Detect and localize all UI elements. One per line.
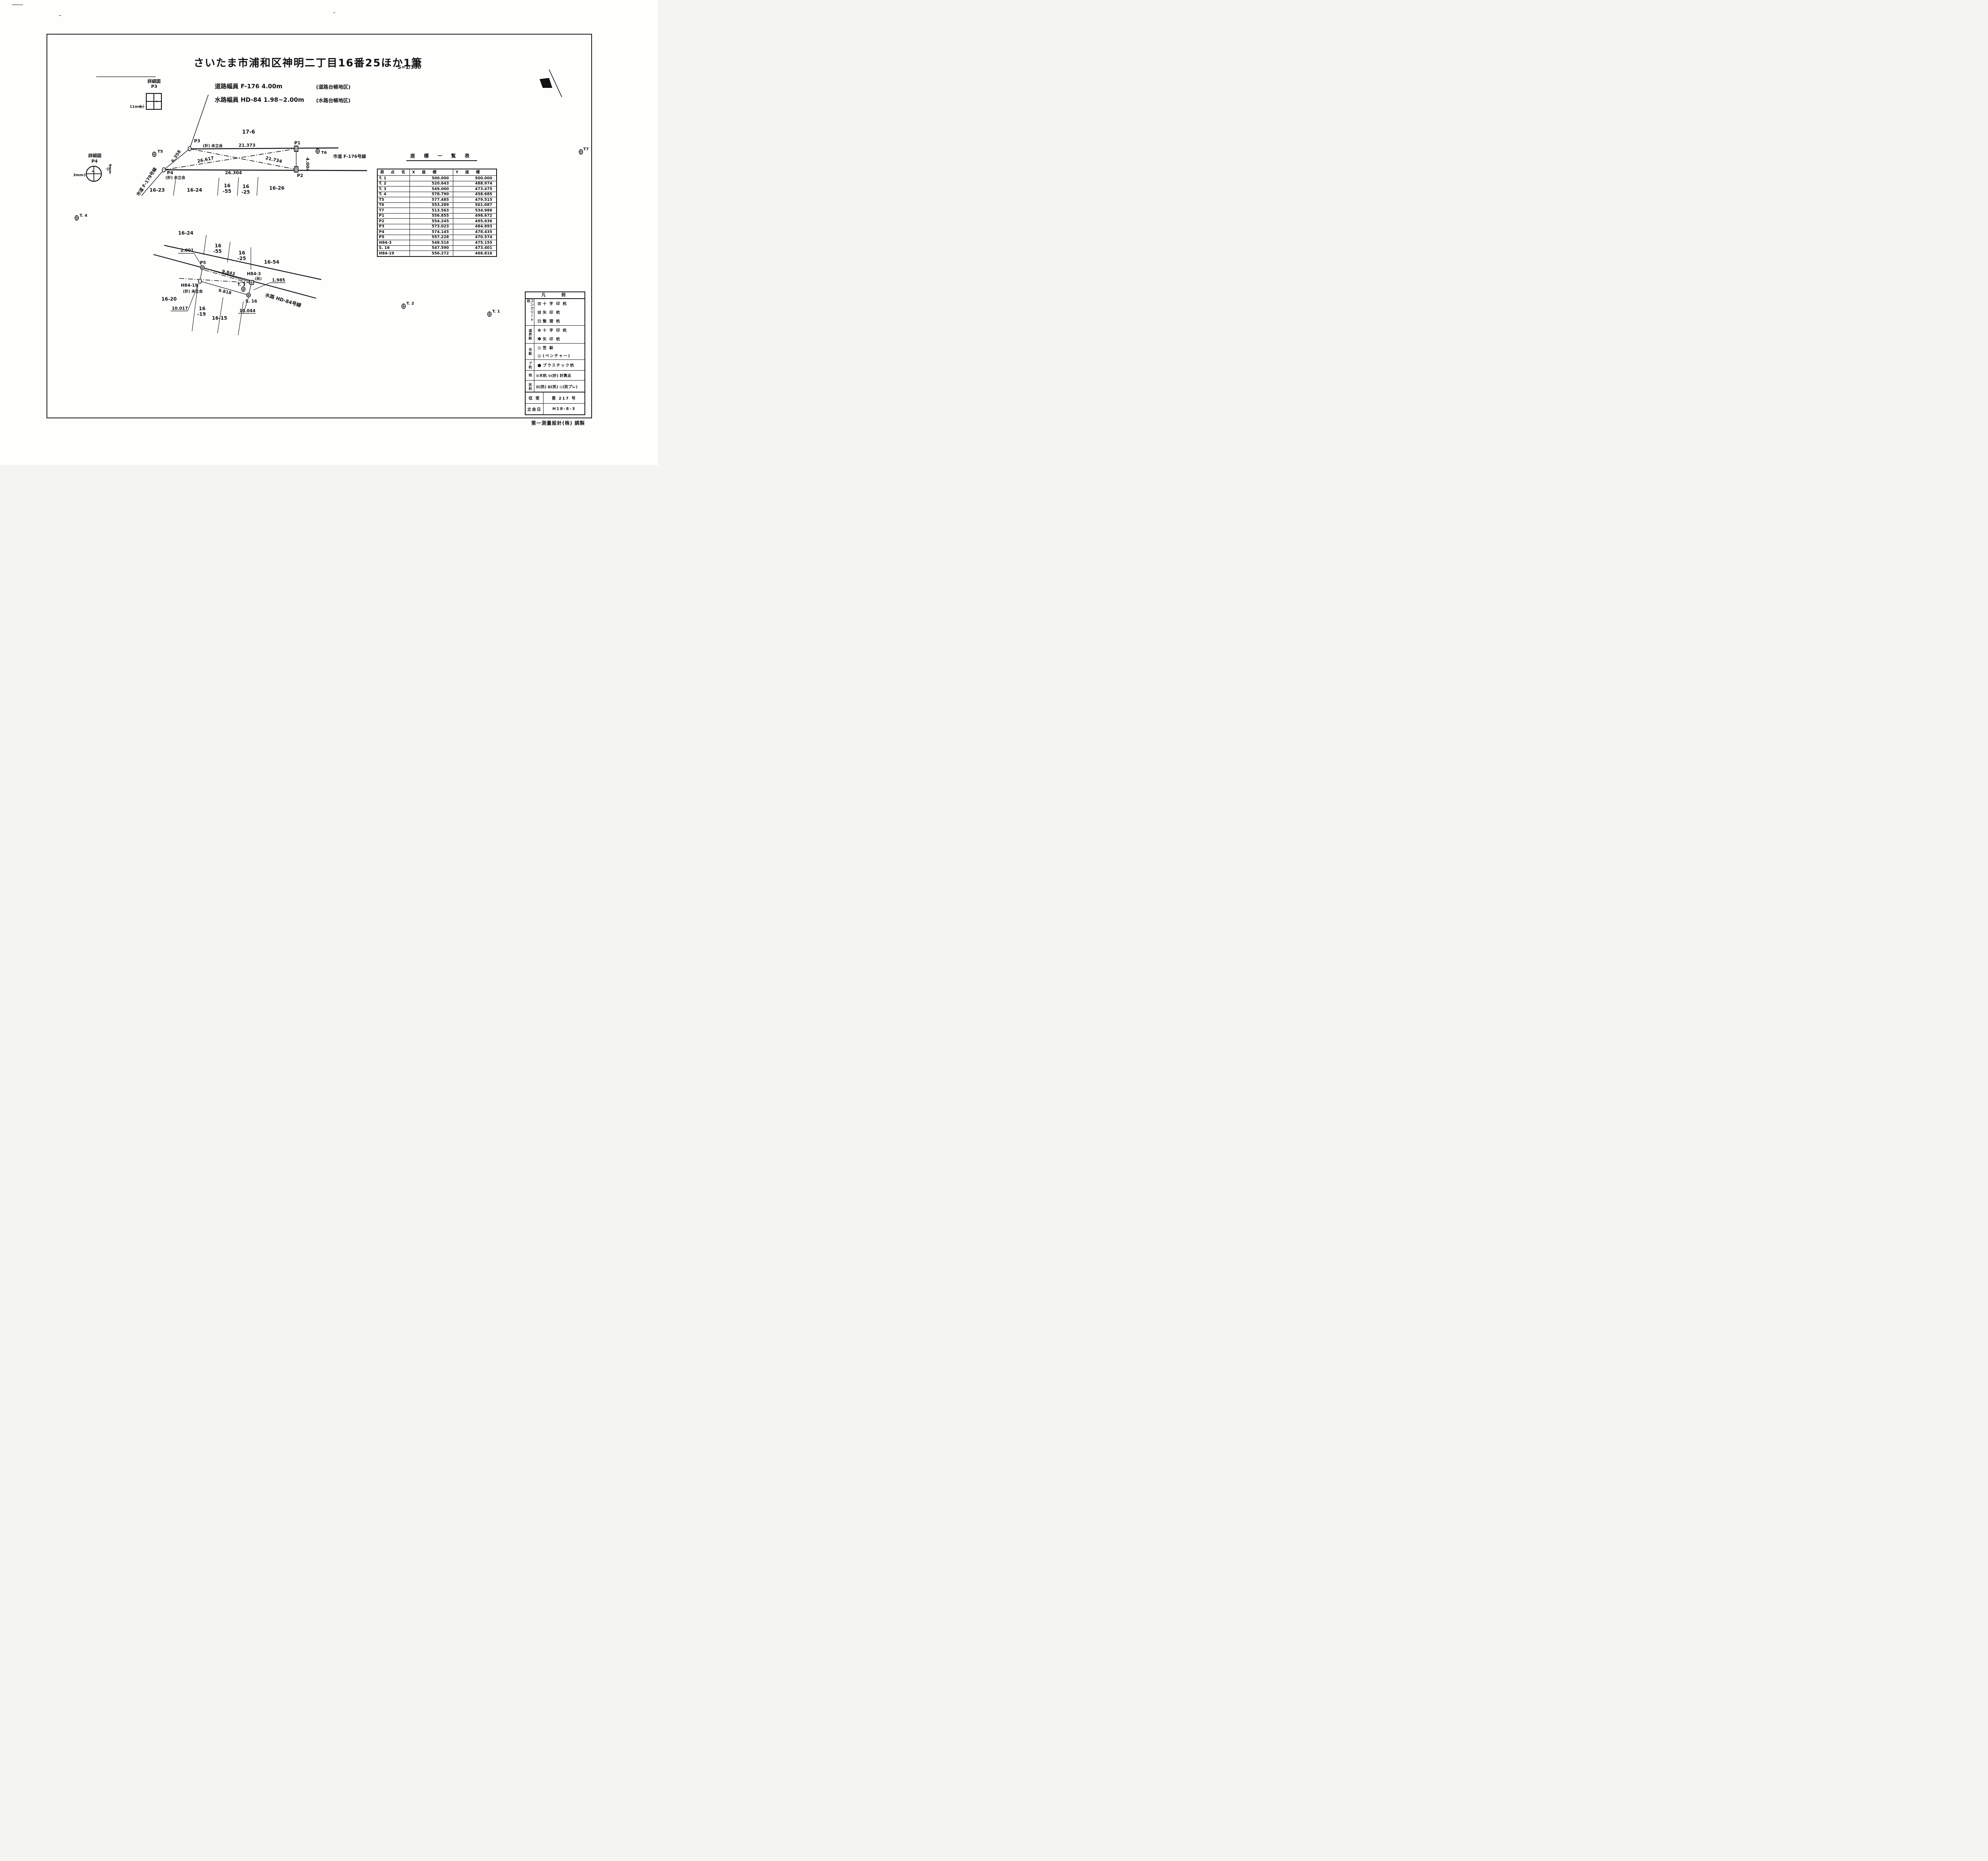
cell-name: P2 (377, 219, 410, 224)
legend-group-private: 民杭 ⊞(民) ⊠(民) ◎(民プレ) (526, 381, 584, 392)
legend-group-label: コンクリート杭 (526, 299, 534, 325)
cell-y: 534.986 (453, 208, 497, 214)
legend-row-label: 矢 印 杭 (543, 336, 583, 342)
parcel-16-24: 16-24 (187, 187, 202, 193)
legend-group-road-pin: 道界鋲 ⊕十 字 印 杭 Φ矢 印 杭 (526, 326, 584, 344)
cell-name: T. 1 (377, 176, 410, 181)
legend-group-plastic: プ杭 ●プラスチック杭 (526, 360, 584, 371)
cell-y: 475.155 (453, 240, 497, 246)
table-row: T. 4578.790458.685 (377, 192, 497, 197)
parcel-label-17-6: 17-6 (242, 129, 255, 135)
table-row: T7513.563534.986 (377, 208, 497, 214)
cell-name: T7 (377, 208, 410, 214)
legend-row-label: (ベンチャー) (543, 353, 583, 358)
dot-square-icon: ⊡ (536, 319, 543, 324)
cell-name: P1 (377, 213, 410, 219)
point-t4-marker (75, 216, 79, 220)
receipt-label: 収 受 (526, 392, 544, 403)
arrow-square-icon: ⊠ (536, 310, 543, 315)
receipt-block: 収 受 第 217 号 立会日 H18-8-3 (525, 392, 585, 415)
cell-x: 513.563 (410, 208, 453, 214)
point-p3-label: P3 (194, 138, 200, 144)
cell-y: 473.475 (453, 186, 497, 192)
measure-2-001: 2.001 (181, 248, 194, 253)
cell-x: 573.023 (410, 224, 453, 229)
legend-group-label: 市鋲 (526, 344, 534, 359)
detail-p3-name: P3 (151, 84, 157, 89)
point-p2-label: P2 (297, 173, 303, 178)
measure-26-304: 26.304 (225, 170, 242, 175)
cell-x: 574.145 (410, 229, 453, 235)
survey-sheet: さいたま市浦和区神明二丁目16番25ほか1筆 S=1/300 道路幅員 F-17… (0, 0, 658, 465)
cell-name: H84-3 (377, 240, 410, 246)
table-row: H84-3548.516475.155 (377, 240, 497, 246)
legend-row: ⊠矢 印 杭 (534, 309, 584, 315)
point-p2-marker (295, 167, 298, 172)
point-h84-3-label: H84-3 (247, 272, 261, 276)
parcel-16-15: 16-15 (212, 315, 227, 321)
legend-group-concrete: コンクリート杭 ⊞十 字 印 杭 ⊠矢 印 杭 ⊡整 理 杭 (526, 299, 584, 326)
table-row: T. 1500.000500.000 (377, 176, 497, 181)
point-t3-marker (242, 287, 245, 291)
col-header-y: Y 座 標 (453, 169, 497, 176)
point-p4-label: P4 (167, 170, 173, 175)
cell-name: T. 2 (377, 181, 410, 186)
point-p5-label: P5 (200, 260, 206, 265)
cell-y: 501.087 (453, 202, 497, 208)
measure-21-373: 21.373 (239, 143, 255, 148)
measure-10-044: 10.044 (239, 309, 256, 313)
cell-name: P5 (377, 235, 410, 240)
point-t5-label: T5 (157, 150, 163, 154)
witness-date-label: 立会日 (526, 404, 544, 414)
point-h84-19-label: H84-19 (181, 283, 198, 288)
coordinate-table-title: 座 標 一 覧 表 (406, 152, 477, 161)
col-header-x: X 座 標 (410, 169, 453, 176)
table-row: P4574.145478.435 (377, 229, 497, 235)
cell-y: 500.000 (453, 176, 497, 181)
cell-name: T. 3 (377, 186, 410, 192)
point-s16-label: S. 16 (245, 299, 257, 304)
parcel-l16-24: 16-24 (178, 230, 193, 236)
road-f176-label: 市道 F-176号線 (333, 153, 366, 159)
point-t6-marker (316, 149, 320, 153)
detail-p3-title: 詳細図 (148, 78, 161, 84)
cell-y: 473.401 (453, 245, 497, 251)
legend-row: ◎笠 鋲 (534, 345, 584, 350)
point-h84-3-marker (250, 280, 254, 284)
legend-row-label: 矢 印 杭 (543, 309, 583, 315)
table-row: T6553.289501.087 (377, 202, 497, 208)
point-p3-note: (計) 未立会 (203, 144, 223, 148)
cell-name: T5 (377, 197, 410, 203)
cell-x: 547.590 (410, 245, 453, 251)
cell-y: 458.685 (453, 192, 497, 197)
legend-row-label: 十 字 印 杭 (543, 301, 583, 306)
parcel-16-55a: 16 (224, 183, 231, 188)
receipt-row: 収 受 第 217 号 (526, 392, 584, 403)
table-row: T. 2520.643488.974 (377, 181, 497, 186)
point-t5-marker (153, 152, 156, 157)
point-p5-marker (200, 266, 204, 270)
measure-1-985: 1.985 (272, 278, 285, 283)
point-t3-label: T. 3 (237, 282, 246, 287)
point-p4-note: (計) 未立会 (165, 175, 185, 180)
cell-name: S. 16 (377, 245, 410, 251)
producer-credit: 第一測量設計(株) 調製 (531, 420, 585, 426)
parcel-16-54: 16-54 (264, 259, 279, 265)
cell-name: H84-19 (377, 251, 410, 256)
cell-y: 495.636 (453, 219, 497, 224)
coordinate-table: 測 点 名 X 座 標 Y 座 標 T. 1500.000500.000 T. … (377, 169, 497, 257)
legend-row-label: プラスチック杭 (543, 362, 583, 368)
cell-x: 577.485 (410, 197, 453, 203)
point-s16-marker (247, 293, 250, 297)
legend-row: ⊕十 字 印 杭 (534, 327, 584, 333)
legend-group-label: プ杭 (526, 360, 534, 370)
cell-x: 557.228 (410, 235, 453, 240)
parcel-16-55b: -55 (223, 188, 231, 194)
coordinate-table-header: 測 点 名 X 座 標 Y 座 標 (377, 169, 497, 176)
witness-date-value: H18-8-3 (544, 407, 584, 411)
cell-x: 578.790 (410, 192, 453, 197)
parcel-16-25b: -25 (241, 189, 250, 195)
parcel-16-23: 16-23 (149, 187, 165, 193)
cell-x: 554.245 (410, 219, 453, 224)
point-p1-marker (295, 146, 298, 152)
point-p3-marker (188, 147, 191, 151)
table-row: H84-19556.272468.816 (377, 251, 497, 256)
north-arrow-icon (540, 70, 562, 97)
point-t6-label: T6 (321, 151, 327, 155)
cell-name: T. 4 (377, 192, 410, 197)
point-h84-19-marker (198, 279, 202, 284)
legend-row-label: ⊙木杭 ⊙(計) 計算点 (536, 373, 583, 378)
detail-p4-dim-h: 3mm (73, 173, 83, 177)
point-t2-label: T. 2 (406, 301, 414, 306)
cell-x: 549.060 (410, 186, 453, 192)
parcel-16-20: 16-20 (161, 296, 177, 302)
legend-row: ●プラスチック杭 (534, 362, 584, 368)
cell-x: 556.855 (410, 213, 453, 219)
cell-x: 556.272 (410, 251, 453, 256)
point-t7-marker (579, 150, 583, 154)
detail-figure-p4 (83, 166, 110, 181)
table-row: P3573.023484.693 (377, 224, 497, 229)
parcel-16-26: 16-26 (269, 185, 284, 191)
cell-name: T6 (377, 202, 410, 208)
parcel-16-25a: 16 (243, 184, 249, 189)
measure-9-818: 9.818 (218, 288, 232, 295)
cross-circle-icon: ⊕ (536, 328, 543, 333)
cell-x: 520.643 (410, 181, 453, 186)
table-row: T5577.485479.515 (377, 197, 497, 203)
detail-p4-title: 詳細図 (88, 153, 101, 158)
detail-p3-dim: 11mm (130, 105, 142, 109)
legend-group-other: 他 ⊙木杭 ⊙(計) 計算点 (526, 371, 584, 381)
point-t1-marker (488, 312, 491, 317)
filled-circle-icon: ● (536, 363, 543, 368)
point-p1-label: P1 (294, 140, 301, 146)
parcel-l16-55a: 16 (215, 243, 221, 249)
measure-21-734: 21.734 (265, 155, 283, 164)
cell-y: 488.974 (453, 181, 497, 186)
double-circle-icon: ◎ (536, 353, 543, 358)
legend-row-label: 笠 鋲 (543, 345, 583, 350)
table-row: T. 3549.060473.475 (377, 186, 497, 192)
legend-row-label: ⊞(民) ⊠(民) ◎(民プレ) (536, 384, 583, 389)
cell-y: 479.515 (453, 197, 497, 203)
cell-x: 500.000 (410, 176, 453, 181)
point-p4-marker (162, 168, 165, 172)
measure-26-617: 26.617 (197, 155, 214, 164)
legend-row-label: 十 字 印 杭 (543, 327, 583, 333)
parcel-l16-25b: -25 (237, 256, 246, 261)
measure-10-017: 10.017 (172, 306, 188, 311)
legend-group-label: 他 (526, 371, 534, 380)
detail-p4-name: P4 (91, 159, 98, 164)
point-t1-label: T. 1 (492, 309, 500, 314)
cell-name: P4 (377, 229, 410, 235)
cell-y: 468.816 (453, 251, 497, 256)
cell-y: 484.693 (453, 224, 497, 229)
receipt-row: 立会日 H18-8-3 (526, 403, 584, 414)
legend-row: ◎(ベンチャー) (534, 353, 584, 358)
legend: 凡 例 コンクリート杭 ⊞十 字 印 杭 ⊠矢 印 杭 ⊡整 理 杭 道界鋲 ⊕… (525, 291, 585, 393)
cell-y: 478.435 (453, 229, 497, 235)
cell-x: 548.516 (410, 240, 453, 246)
cell-y: 470.574 (453, 235, 497, 240)
legend-row: Φ矢 印 杭 (534, 336, 584, 342)
point-t4-label: T. 4 (80, 214, 87, 218)
cross-square-icon: ⊞ (536, 301, 543, 306)
point-t2-marker (402, 304, 406, 309)
point-t7-label: T7 (583, 147, 589, 152)
legend-group-city-pin: 市鋲 ◎笠 鋲 ◎(ベンチャー) (526, 344, 584, 360)
parcel-l16-55b: -55 (213, 249, 222, 254)
parcel-l16-25a: 16 (239, 250, 245, 256)
point-h84-3-note: (民) (255, 277, 262, 281)
legend-row: ⊙木杭 ⊙(計) 計算点 (534, 373, 584, 378)
detail-p4-dim-v: 9mm (108, 164, 112, 174)
double-circle-icon: ◎ (536, 345, 543, 350)
cell-name: P3 (377, 224, 410, 229)
table-row: P5557.228470.574 (377, 235, 497, 240)
cell-x: 553.289 (410, 202, 453, 208)
legend-group-label: 民杭 (526, 381, 534, 392)
table-row: S. 16547.590473.401 (377, 245, 497, 251)
bar-circle-icon: Φ (536, 336, 543, 342)
legend-row: ⊡整 理 杭 (534, 318, 584, 324)
measure-4-004: 4.004 (305, 157, 310, 171)
legend-group-label: 道界鋲 (526, 326, 534, 343)
point-h84-19-note: (計) 未立会 (183, 289, 203, 294)
cell-y: 498.672 (453, 213, 497, 219)
parcel-16-19a: 16 (199, 306, 206, 311)
legend-title: 凡 例 (526, 292, 584, 299)
legend-row-label: 整 理 杭 (543, 318, 583, 324)
legend-row: ⊞十 字 印 杭 (534, 301, 584, 306)
table-row: P2554.245495.636 (377, 219, 497, 224)
legend-row: ⊞(民) ⊠(民) ◎(民プレ) (534, 384, 584, 389)
receipt-number: 第 217 号 (544, 395, 584, 401)
table-row: P1556.855498.672 (377, 213, 497, 219)
waterway-label: 水路 HD-84号線 (264, 292, 302, 309)
col-header-point: 測 点 名 (377, 169, 410, 176)
parcel-16-19b: -19 (197, 311, 206, 317)
